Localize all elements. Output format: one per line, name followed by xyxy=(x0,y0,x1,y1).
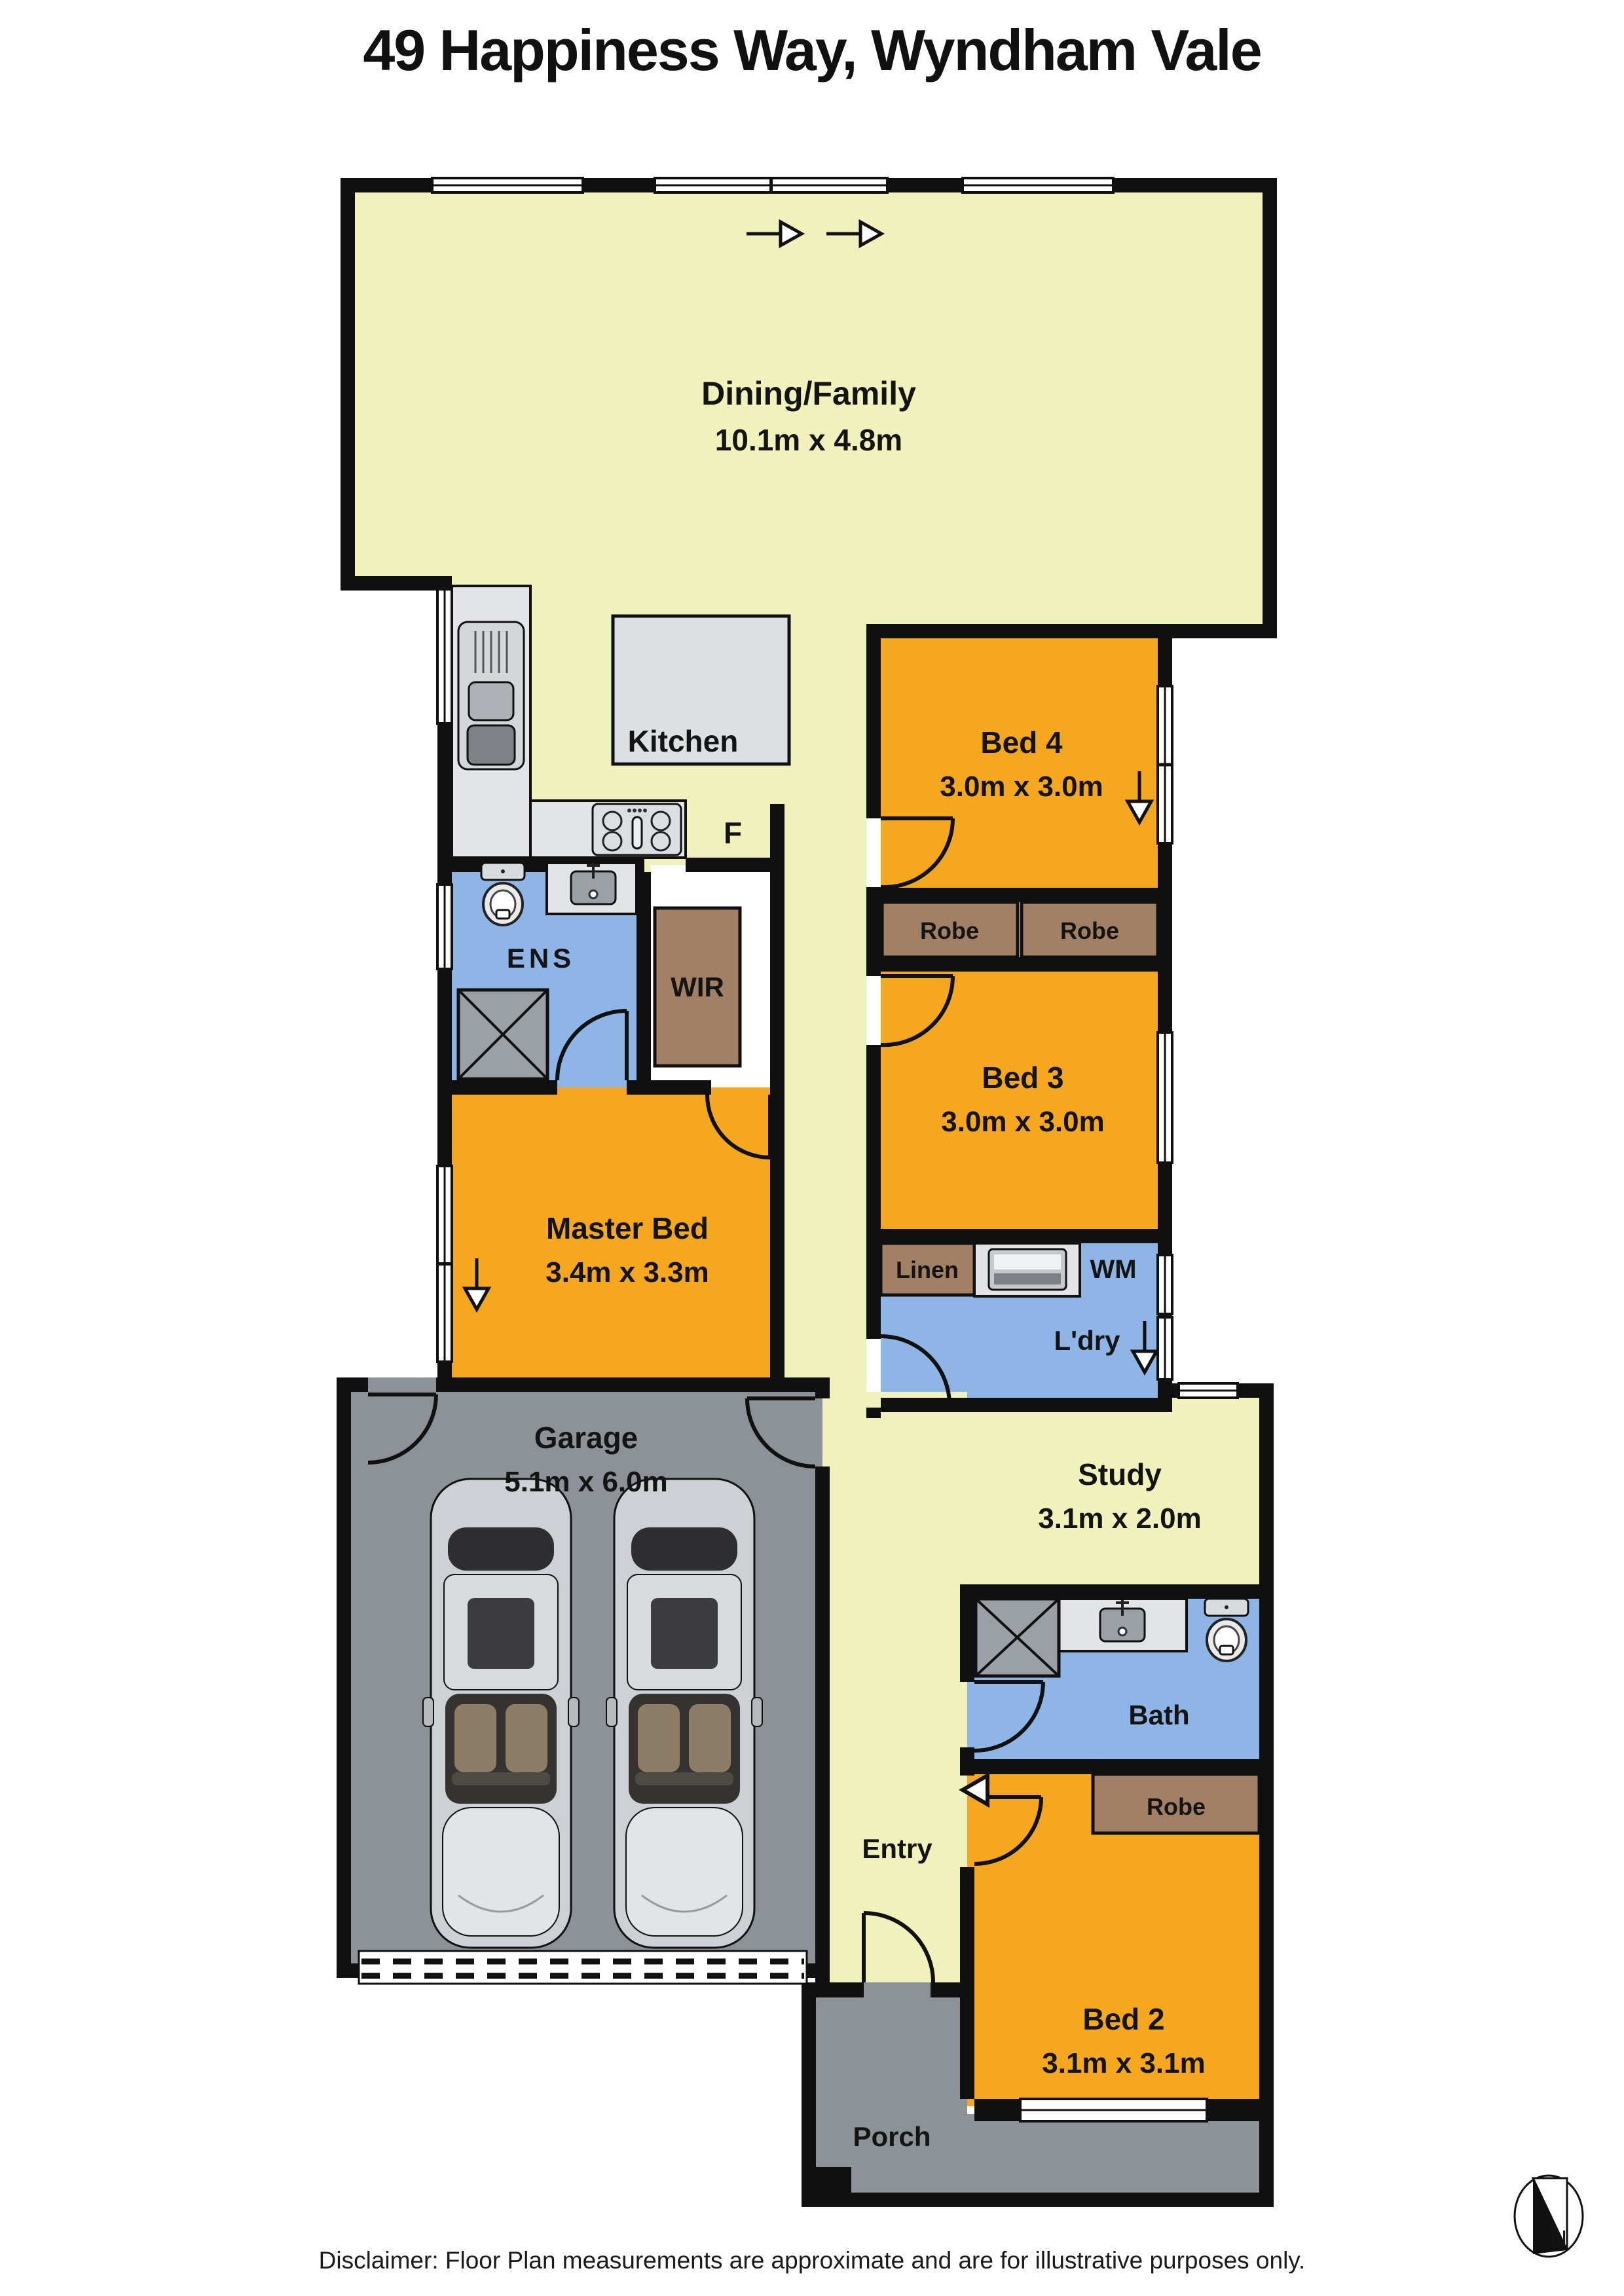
label-entry: Entry xyxy=(862,1833,932,1864)
label-porch: Porch xyxy=(853,2121,931,2152)
car-right-rear-window xyxy=(631,1527,737,1571)
wall xyxy=(686,858,784,872)
wall xyxy=(337,1377,368,1392)
label-study-dims: 3.1m x 2.0m xyxy=(1038,1503,1202,1535)
room-entry xyxy=(815,1392,967,1997)
wall xyxy=(337,1963,359,1978)
wall xyxy=(627,1080,711,1095)
wall xyxy=(881,957,1158,972)
wall xyxy=(1259,2121,1274,2193)
label-master-dims: 3.4m x 3.3m xyxy=(545,1256,709,1288)
wall xyxy=(866,887,881,976)
car-right-hood xyxy=(626,1808,743,1936)
disclaimer: Disclaimer: Floor Plan measurements are … xyxy=(0,2247,1624,2274)
kitchen-sink-bowl-2 xyxy=(468,725,515,765)
car-left-hood xyxy=(443,1808,559,1936)
ens-toilet-button xyxy=(501,869,505,873)
label-bed3: Bed 3 xyxy=(982,1061,1063,1095)
wall xyxy=(637,872,651,1087)
label-robe4-right: Robe xyxy=(1060,917,1119,944)
wall xyxy=(960,1867,974,2099)
car-right-mirror-right xyxy=(752,1698,762,1726)
wall xyxy=(881,1229,1158,1243)
wall xyxy=(341,576,452,591)
label-garage-dims: 5.1m x 6.0m xyxy=(504,1466,668,1498)
wall xyxy=(866,1408,881,1418)
label-kitchen: Kitchen xyxy=(628,724,739,758)
kitchen-cooktop-knob xyxy=(638,809,642,812)
ens-basin-drain xyxy=(589,890,597,898)
kitchen-cooktop-knob xyxy=(627,809,631,812)
label-bed3-dims: 3.0m x 3.0m xyxy=(941,1106,1105,1138)
label-wir: WIR xyxy=(671,972,724,1002)
label-bed4: Bed 4 xyxy=(980,725,1063,759)
car-right-mirror-left xyxy=(606,1698,617,1726)
kitchen-cooktop-center xyxy=(633,817,642,848)
label-bath: Bath xyxy=(1128,1700,1189,1730)
car-left-mirror-right xyxy=(568,1698,579,1726)
label-robe4-left: Robe xyxy=(920,917,979,944)
label-robe-bed2: Robe xyxy=(1147,1793,1206,1820)
bath-basin-drain xyxy=(1118,1628,1126,1635)
wall xyxy=(1259,1383,1274,2121)
car-right-seat-right xyxy=(689,1704,731,1772)
car-left-mirror-left xyxy=(423,1698,434,1726)
label-laundry: L'dry xyxy=(1054,1325,1120,1356)
label-dining: Dining/Family xyxy=(701,375,916,412)
wall xyxy=(881,888,1158,902)
wall xyxy=(815,1467,830,1982)
washing-machine-lid xyxy=(994,1254,1061,1269)
car-right-seat-left xyxy=(638,1704,680,1772)
label-ens: ENS xyxy=(507,943,575,974)
kitchen-cooktop-knob xyxy=(643,809,647,812)
wall xyxy=(866,624,881,818)
wall xyxy=(815,1377,830,1398)
wall xyxy=(816,1982,864,1997)
car-left-sunroof xyxy=(468,1598,534,1669)
label-study: Study xyxy=(1078,1457,1162,1491)
car-left-seat-right xyxy=(506,1704,547,1772)
ens-toilet-seat xyxy=(496,910,509,919)
wall xyxy=(866,624,1277,638)
wall xyxy=(802,2193,1274,2207)
washing-machine-band xyxy=(994,1273,1061,1285)
label-fridge: F xyxy=(724,816,742,850)
wall xyxy=(1263,178,1277,638)
wall xyxy=(770,1095,784,1392)
floor-plan-svg: Dining/Family10.1m x 4.8mKitchenFENSWIRM… xyxy=(0,0,1624,2296)
car-left-dash xyxy=(452,1772,550,1785)
floorplan-page: 49 Happiness Way, Wyndham Vale Dining/Fa… xyxy=(0,0,1624,2296)
label-wm: WM xyxy=(1090,1255,1136,1284)
wall xyxy=(866,1045,881,1339)
wall xyxy=(802,2167,851,2193)
car-left-seat-left xyxy=(454,1704,496,1772)
kitchen-cooktop-knob xyxy=(633,809,637,812)
wall xyxy=(960,1584,974,1682)
wall xyxy=(341,178,355,591)
room-bed3 xyxy=(881,962,1158,1236)
label-garage: Garage xyxy=(534,1421,638,1455)
car-right-sunroof xyxy=(651,1598,718,1669)
bath-toilet-button xyxy=(1225,1605,1228,1609)
wall xyxy=(974,1759,1259,1774)
label-bed2-dims: 3.1m x 3.1m xyxy=(1042,2047,1206,2079)
room-bed4 xyxy=(881,631,1158,895)
wall xyxy=(960,1747,974,1776)
wall xyxy=(437,1080,557,1095)
label-bed4-dims: 3.0m x 3.0m xyxy=(940,771,1103,803)
label-bed2: Bed 2 xyxy=(1082,2002,1164,2036)
label-dining-dims: 10.1m x 4.8m xyxy=(715,423,902,457)
label-linen: Linen xyxy=(896,1256,959,1283)
kitchen-sink-bowl-1 xyxy=(469,682,513,720)
bath-toilet-seat xyxy=(1220,1646,1233,1654)
car-right-dash xyxy=(635,1772,733,1785)
wall xyxy=(960,1584,1274,1599)
wall xyxy=(337,1392,351,1978)
room-porch-strip xyxy=(967,2114,1259,2200)
wall xyxy=(770,804,784,1095)
room-hall xyxy=(784,624,866,1418)
car-left-rear-window xyxy=(448,1527,554,1571)
label-master: Master Bed xyxy=(546,1211,709,1245)
